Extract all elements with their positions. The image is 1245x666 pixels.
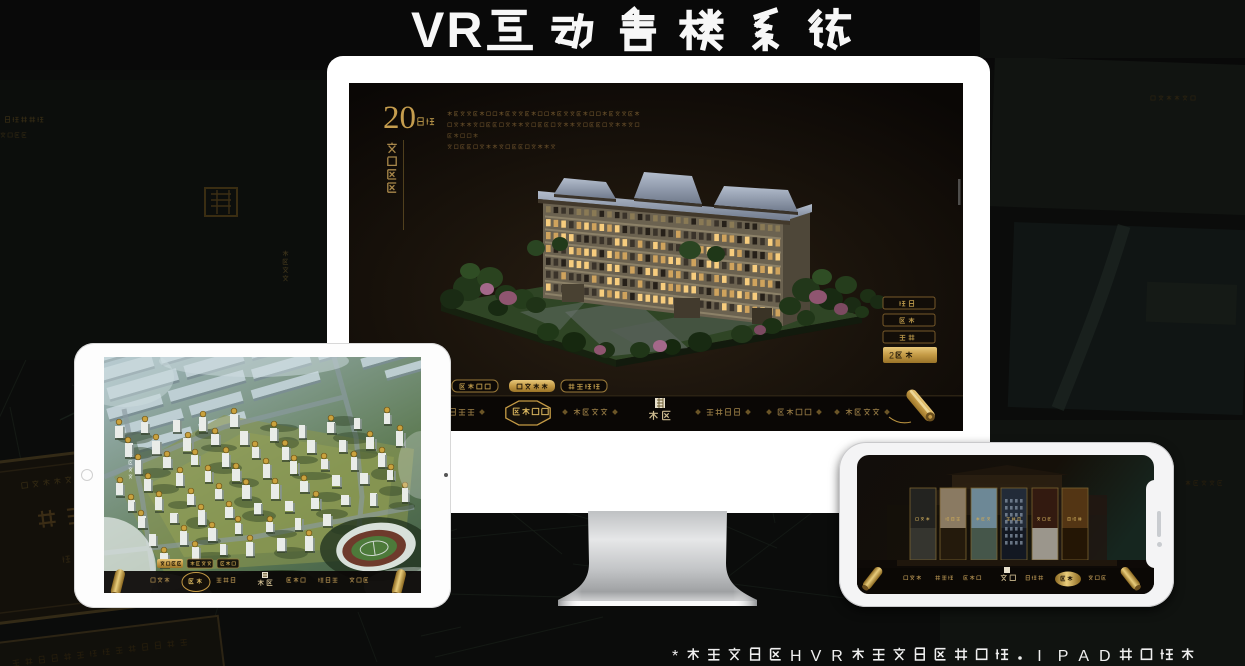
svg-text:I: I [1037,648,1041,665]
svg-text:V: V [811,648,822,665]
svg-text:A: A [1078,648,1089,665]
svg-text:D: D [1099,648,1111,665]
svg-text:H: H [790,648,802,665]
svg-text:R: R [831,648,843,665]
svg-text:*: * [672,648,678,665]
svg-text:P: P [1058,648,1069,665]
